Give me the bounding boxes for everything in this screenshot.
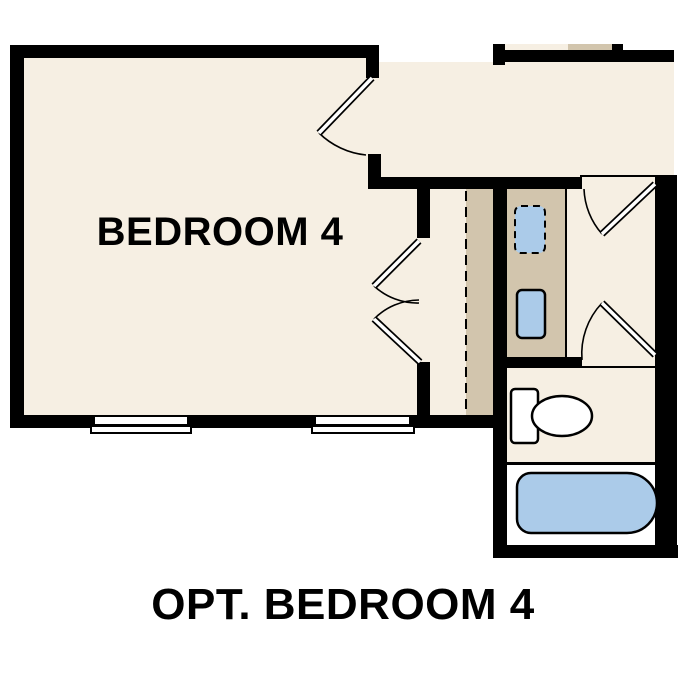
- floor-plan: BEDROOM 4 OPT. BEDROOM 4: [0, 0, 687, 687]
- closet-door-leaf-top: [374, 241, 419, 286]
- vanity-sink: [517, 290, 545, 338]
- toilet-bowl: [532, 396, 592, 436]
- closet-door-leaf-bottom: [374, 319, 420, 362]
- bathtub: [517, 473, 657, 533]
- plan-title: OPT. BEDROOM 4: [93, 583, 593, 627]
- bedroom-door-swing-arc: [319, 133, 366, 155]
- bath-door-leaf-bottom: [602, 303, 655, 355]
- optional-vanity-sink: [515, 206, 545, 253]
- bedroom-label: BEDROOM 4: [60, 212, 380, 252]
- bath-door-swing-arc-bottom: [582, 303, 602, 360]
- bath-door-leaf-top: [602, 184, 655, 234]
- bath-door-swing-arc-top: [584, 189, 602, 234]
- bedroom-door-leaf: [319, 78, 372, 133]
